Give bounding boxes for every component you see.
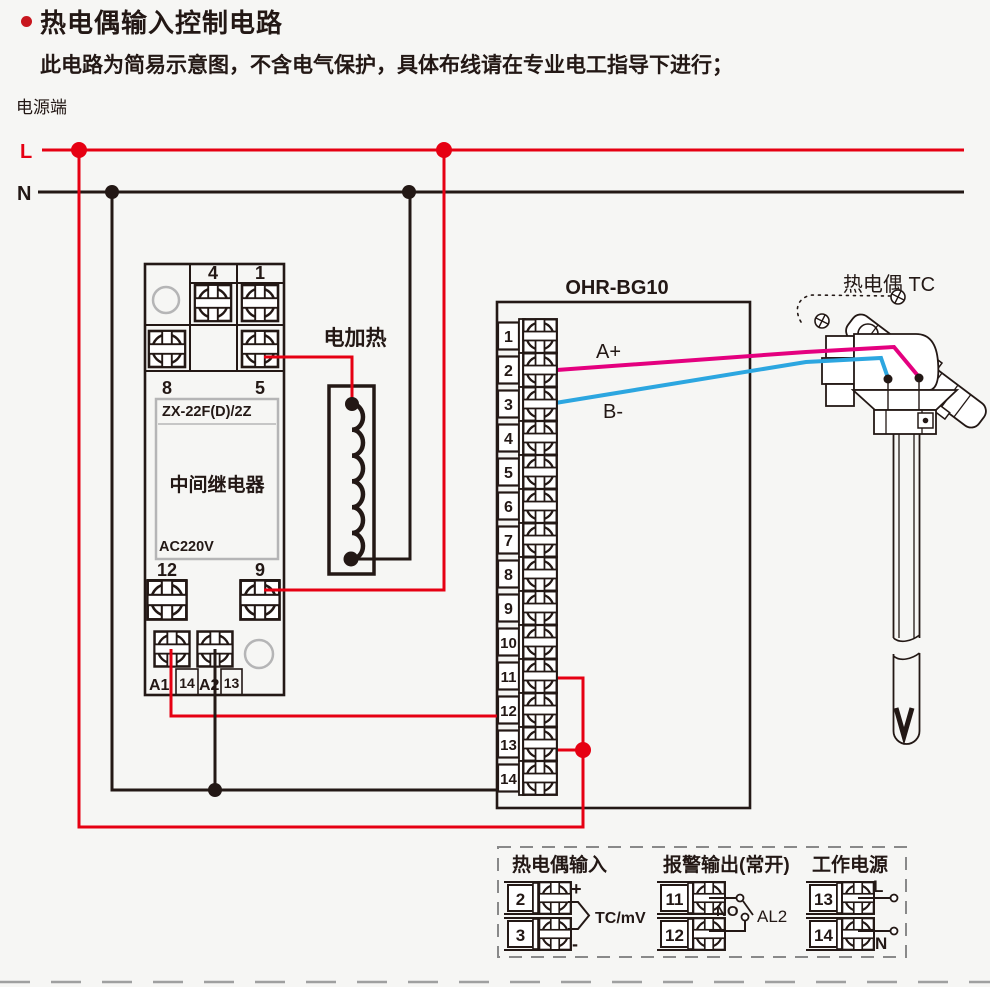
controller-terminals: 1 2 3 4 5 6 7 8 9 10 11 12 13 14 xyxy=(498,319,557,795)
controller-terminal-2: 2 xyxy=(504,363,513,380)
legend-tc-plus: + xyxy=(571,879,582,899)
relay-terminal-label-12: 12 xyxy=(157,560,177,580)
legend-tc-signal: TC/mV xyxy=(595,910,646,927)
power-rails: 电源端 L N xyxy=(16,98,964,205)
power-section-label: 电源端 xyxy=(16,98,67,117)
heater-top-node xyxy=(345,397,359,411)
legend-working-power: 工作电源 13 14 L N xyxy=(806,853,898,953)
relay-model: ZX-22F(D)/2Z xyxy=(162,404,252,420)
legend-alarm-terminal-top: 11 xyxy=(666,890,684,909)
controller-terminal-11: 11 xyxy=(501,669,517,686)
hex-fitting xyxy=(822,336,858,406)
neutral-label: N xyxy=(17,183,31,205)
tc-pos-terminal-node xyxy=(915,374,924,383)
legend-tc-terminal-top: 2 xyxy=(516,890,525,909)
coil-a2-junction xyxy=(208,783,222,797)
hinge-dotted-arc xyxy=(797,295,890,322)
tc-pos-label: A+ xyxy=(596,341,621,363)
relay-mount-hole-top xyxy=(153,287,179,313)
legend-tc-minus: - xyxy=(572,934,578,954)
relay-terminal-label-5: 5 xyxy=(255,378,265,398)
heater: 电加热 xyxy=(324,326,387,574)
live-13-11-junction xyxy=(575,742,591,758)
legend-alarm-output: 报警输出(常开) 11 12 NO AL2 xyxy=(657,853,790,950)
tc-neg-terminal-node xyxy=(884,375,893,384)
tc-neg-label: B- xyxy=(603,401,623,423)
relay-terminal-label-9: 9 xyxy=(255,560,265,580)
legend-supply-terminal-bottom: 14 xyxy=(814,926,833,945)
legend-supply-title: 工作电源 xyxy=(812,853,888,876)
controller-terminal-7: 7 xyxy=(504,533,513,550)
legend-tc-title: 热电偶输入 xyxy=(512,853,607,876)
controller-terminal-4: 4 xyxy=(504,431,513,448)
wire-live-to-contact9 xyxy=(264,152,444,590)
live-label: L xyxy=(20,141,32,163)
controller-terminal-5: 5 xyxy=(504,465,513,482)
wire-live-to-terminal11 xyxy=(79,152,583,827)
legend-tc-terminal-bottom: 3 xyxy=(516,926,525,945)
wiring-diagram-page: 热电偶输入控制电路 此电路为简易示意图，不含电气保护，具体布线请在专业电工指导下… xyxy=(0,0,990,987)
controller-terminal-6: 6 xyxy=(504,499,513,516)
thermocouple: 热电偶 TC xyxy=(797,273,990,744)
controller-terminal-14: 14 xyxy=(500,771,517,788)
legend-alarm-name: AL2 xyxy=(757,907,787,926)
controller-terminal-9: 9 xyxy=(504,601,513,618)
relay-coil-label-a1: A1 xyxy=(149,677,170,694)
legend: 热电偶输入 2 3 + - TC/mV 报警输出(常开) xyxy=(498,847,906,957)
legend-supply-live: L xyxy=(873,877,883,896)
relay: 4 1 8 5 ZX-22F(D)/2Z 中间继电器 AC220V 12 9 A… xyxy=(145,263,284,695)
legend-tc-input: 热电偶输入 2 3 + - TC/mV xyxy=(504,853,646,954)
controller-terminal-12: 12 xyxy=(500,703,517,720)
relay-contact-label-14: 14 xyxy=(179,675,195,691)
thermocouple-label: 热电偶 TC xyxy=(843,273,935,296)
relay-voltage: AC220V xyxy=(159,539,214,555)
probe-tip-arrow xyxy=(896,708,912,736)
relay-name: 中间继电器 xyxy=(169,473,265,496)
relay-terminal-label-8: 8 xyxy=(162,378,172,398)
legend-supply-neutral: N xyxy=(875,934,887,953)
legend-supply-terminal-top: 13 xyxy=(814,890,833,909)
heater-label: 电加热 xyxy=(324,326,387,350)
relay-terminal-label-4: 4 xyxy=(208,263,218,283)
legend-alarm-title: 报警输出(常开) xyxy=(663,853,790,876)
controller-terminal-13: 13 xyxy=(500,737,517,754)
relay-contact-label-13: 13 xyxy=(224,675,240,691)
heater-coil xyxy=(352,404,363,559)
controller-terminal-1: 1 xyxy=(504,329,513,346)
probe xyxy=(894,434,920,744)
controller-terminal-3: 3 xyxy=(504,397,513,414)
heater-bottom-node xyxy=(344,552,359,567)
circuit-diagram: 电源端 L N 热电偶 TC xyxy=(0,0,990,987)
relay-terminal-label-1: 1 xyxy=(255,263,265,283)
controller-terminal-10: 10 xyxy=(500,635,517,652)
controller-terminal-8: 8 xyxy=(504,567,513,584)
legend-alarm-terminal-bottom: 12 xyxy=(665,926,684,945)
heater-outline xyxy=(329,386,374,574)
legend-alarm-mode: NO xyxy=(716,903,739,920)
controller-model: OHR-BG10 xyxy=(565,277,668,299)
head-body xyxy=(854,334,938,390)
relay-mount-hole-bottom xyxy=(245,640,273,668)
